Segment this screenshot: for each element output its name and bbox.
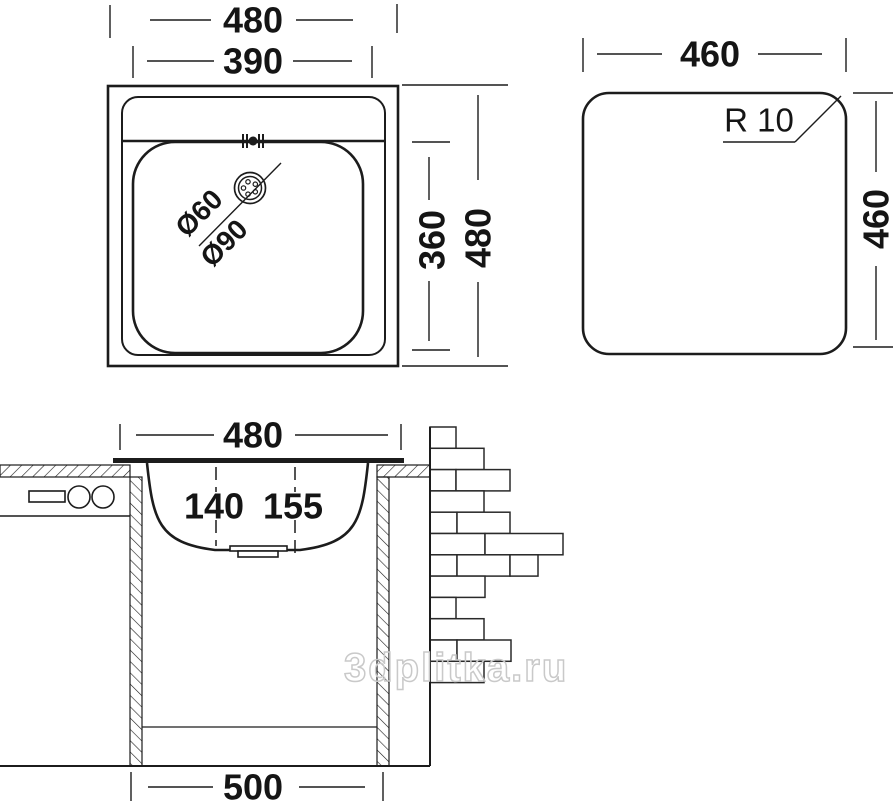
brick [430, 597, 456, 618]
section-dim-top-width-label: 480 [223, 415, 283, 456]
countertop-right-section [377, 465, 430, 477]
section-dim-cabinet-width: 500 [131, 767, 383, 803]
cutout-dim-height-label: 460 [856, 189, 896, 249]
section-dim-depth-back-label: 155 [263, 486, 323, 527]
brick [430, 470, 456, 491]
drain-icon [235, 173, 266, 204]
appliance-knob-right [92, 486, 114, 508]
cutout-outline [583, 93, 846, 354]
drain-fitting [230, 546, 287, 557]
brick [485, 534, 563, 555]
brick [430, 619, 484, 640]
sink-technical-drawing: Ø60 Ø90 480 390 360 [0, 0, 896, 803]
watermark: 3dplitka.ru [344, 646, 568, 691]
cutout-dim-width: 460 [583, 34, 846, 75]
depth-line-140: 140 [184, 467, 244, 546]
section-dim-top-width: 480 [120, 415, 401, 456]
brick [430, 534, 485, 555]
cutout-radius-callout: R 10 [723, 96, 841, 142]
plan-dim-bowl-width-label: 390 [223, 41, 283, 82]
plan-dim-outer-width-label: 480 [223, 0, 283, 41]
brick [430, 555, 457, 576]
plan-bowl-outline [133, 142, 363, 353]
brick [430, 448, 484, 469]
appliance-front [0, 486, 130, 516]
cabinet-left-panel [130, 477, 142, 766]
plan-dim-bowl-height: 360 [412, 142, 453, 350]
section-view: 480 140 155 [0, 415, 563, 803]
appliance-knob-left [68, 486, 90, 508]
sink-rim-section [113, 458, 404, 463]
plan-view: Ø60 Ø90 480 390 360 [108, 0, 508, 366]
brick-wall [430, 427, 563, 683]
brick [430, 491, 484, 512]
brick [510, 555, 538, 576]
cabinet-right-panel [377, 477, 389, 766]
plan-dim-outer-width: 480 [110, 0, 397, 41]
cutout-dim-height: 460 [853, 93, 896, 347]
section-dim-cabinet-width-label: 500 [223, 767, 283, 803]
overflow-mark-icon [243, 134, 263, 148]
plan-dim-bowl-width: 390 [133, 41, 372, 82]
plan-dim-bowl-height-label: 360 [412, 210, 453, 270]
bowl-section-outline [147, 463, 368, 550]
countertop-left-section [0, 465, 130, 477]
brick [430, 512, 457, 533]
brick [430, 576, 485, 597]
brick [457, 555, 510, 576]
brick [430, 427, 456, 448]
brick [457, 512, 510, 533]
cutout-view: 460 R 10 460 [583, 34, 896, 355]
appliance-handle [29, 491, 65, 502]
section-dim-depth-front-label: 140 [184, 486, 244, 527]
plan-inner-rim [122, 97, 385, 355]
cutout-dim-width-label: 460 [680, 34, 740, 75]
plan-dim-outer-height-label: 480 [458, 208, 499, 268]
cutout-radius-label: R 10 [724, 102, 794, 139]
plan-outer-frame [108, 86, 398, 366]
brick [456, 470, 510, 491]
